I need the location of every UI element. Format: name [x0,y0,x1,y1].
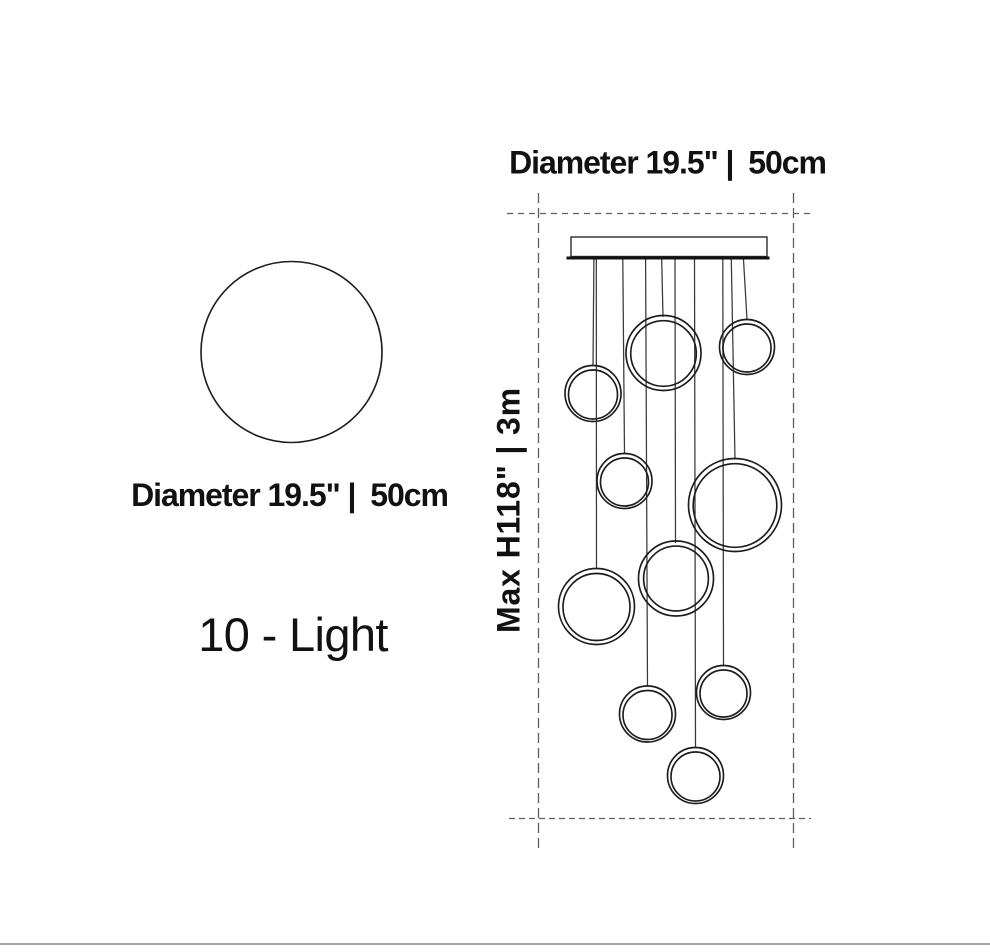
svg-text:10 - Light: 10 - Light [198,608,388,661]
svg-text:Diameter 19.5" | 50cm: Diameter 19.5" | 50cm [509,145,826,181]
svg-text:Diameter 19.5" | 50cm: Diameter 19.5" | 50cm [131,477,448,513]
svg-text:Max H118" | 3m: Max H118" | 3m [491,387,527,633]
